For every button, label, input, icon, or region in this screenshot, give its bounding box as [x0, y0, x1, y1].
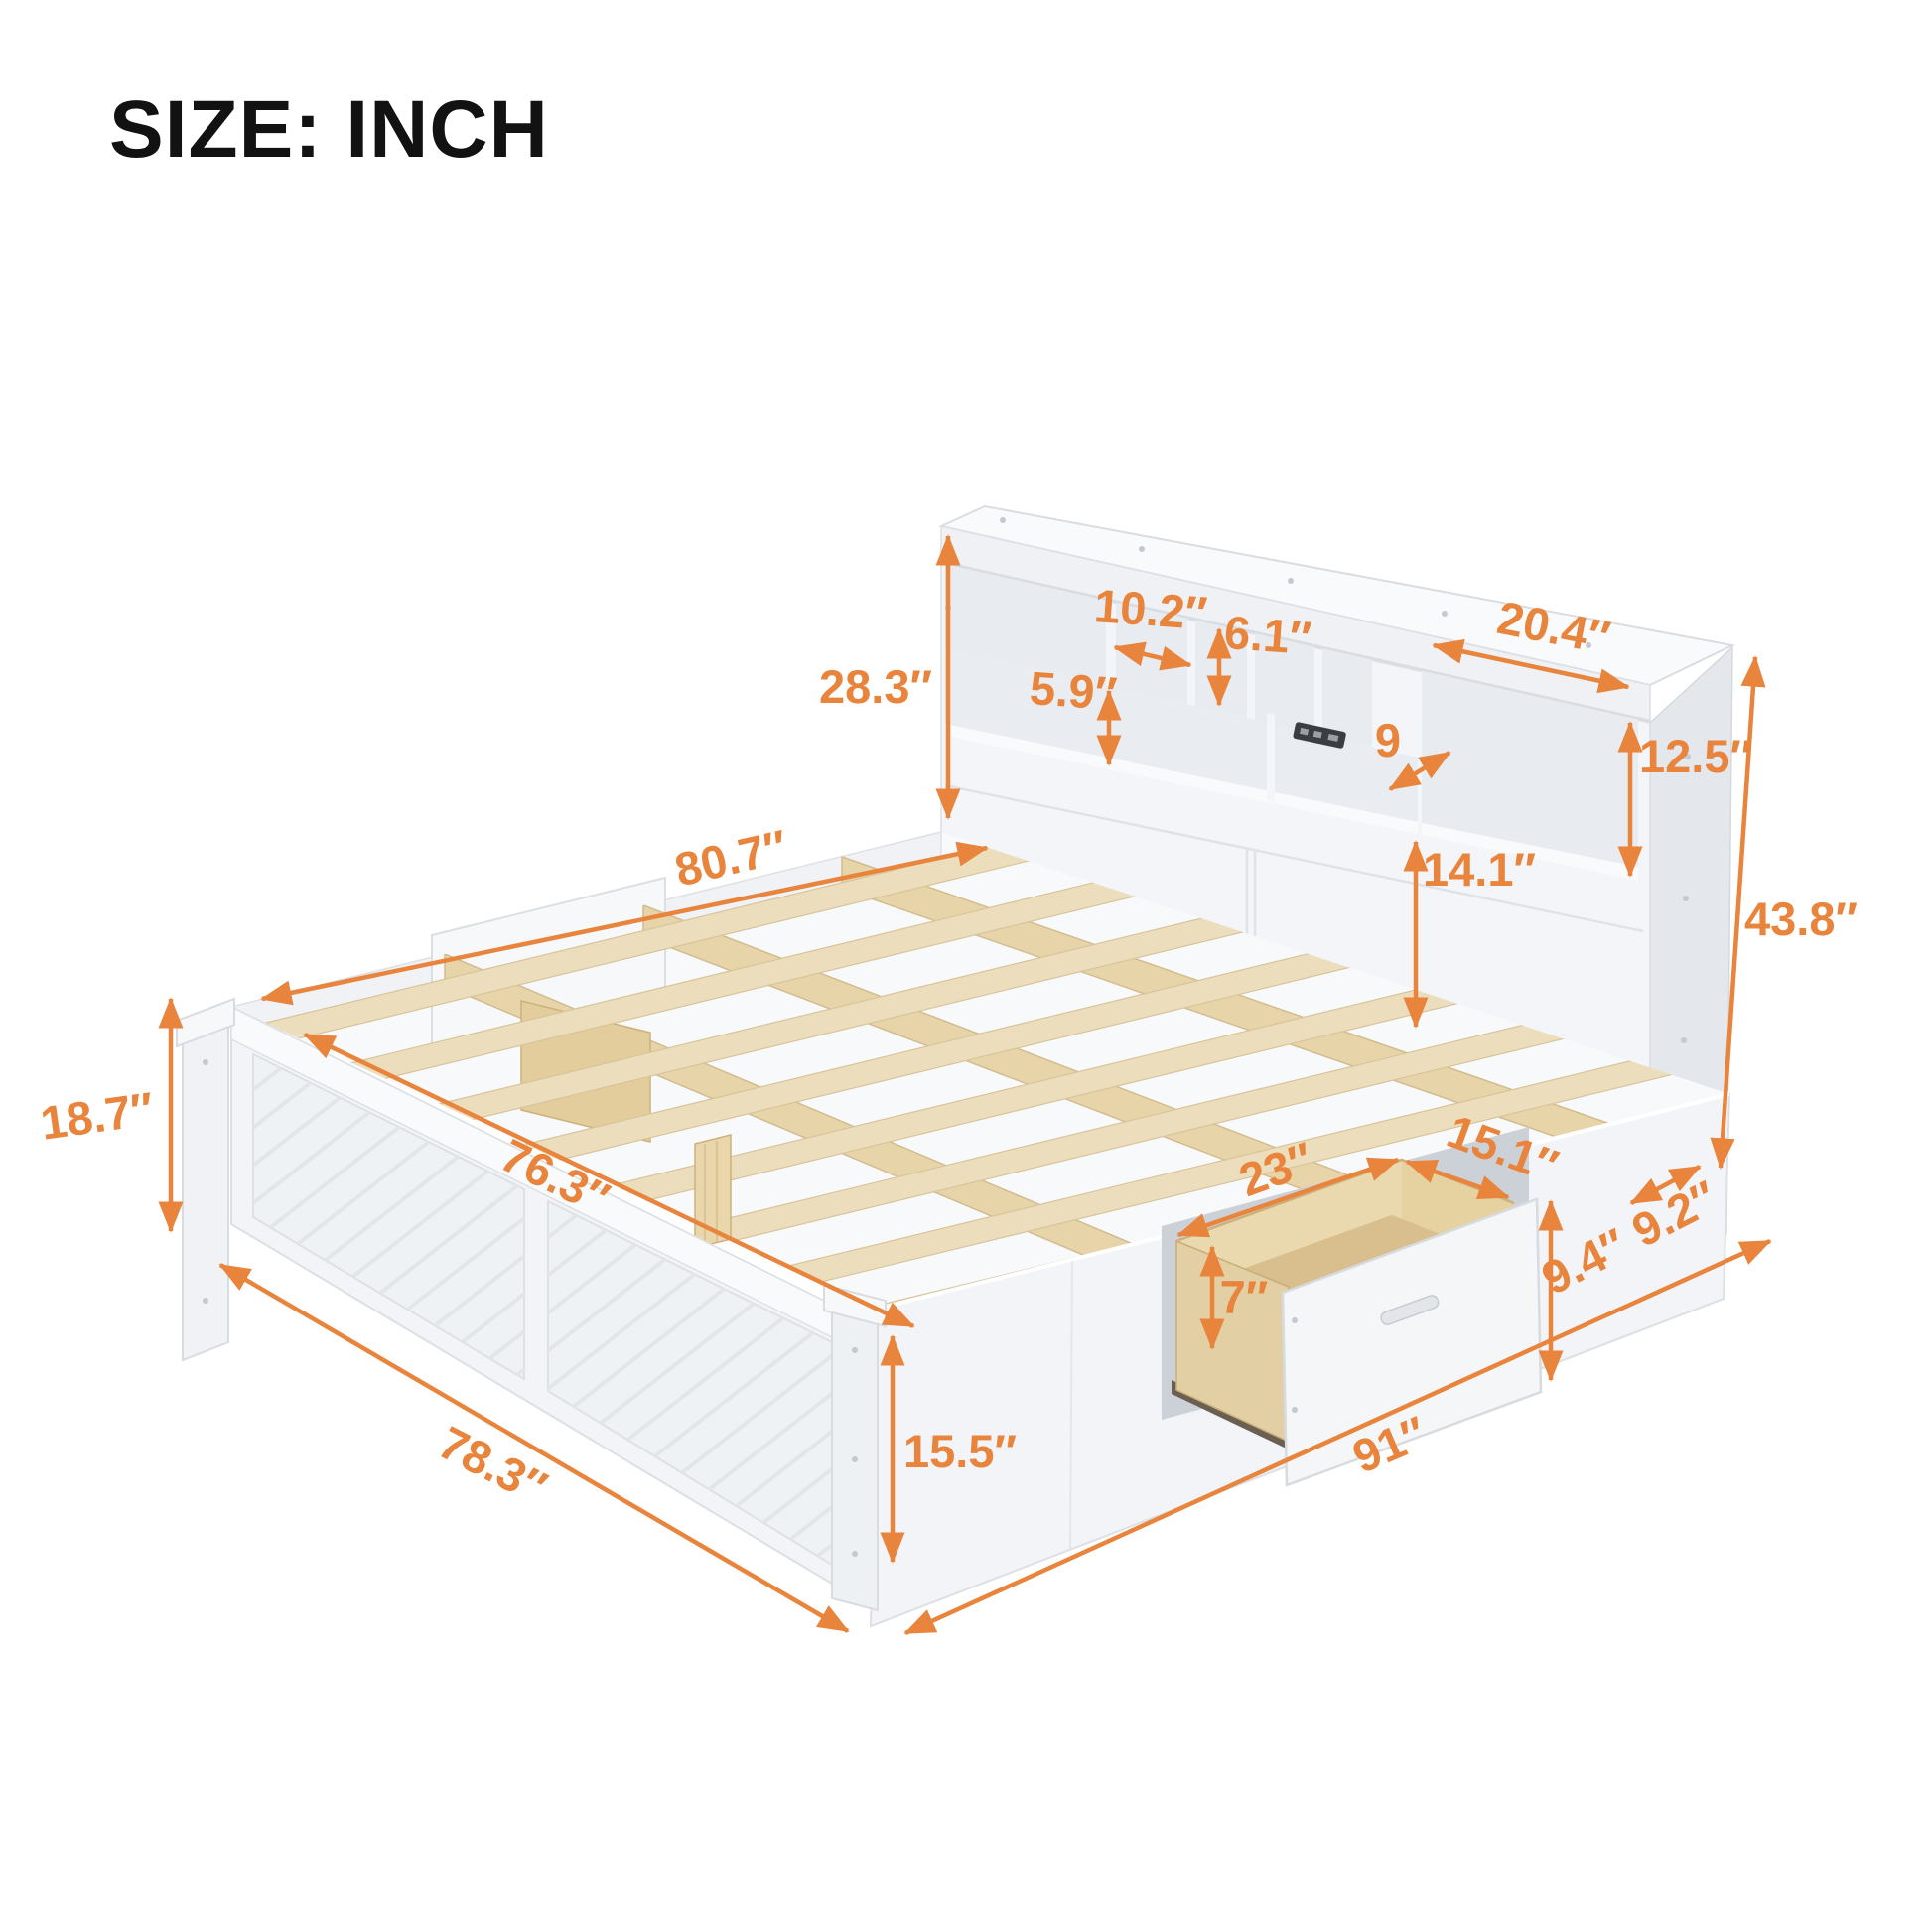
- dim-label-lower-panel-height: 14.1″: [1423, 843, 1536, 896]
- dim-label-footboard-height: 18.7″: [38, 1081, 157, 1149]
- page-title: SIZE: INCH: [109, 84, 549, 175]
- dim-label-cubby-small-width: 10.2″: [1092, 579, 1208, 639]
- dim-label-drawer-inner-height: 7″: [1220, 1271, 1269, 1323]
- dim-label-cubby-depth: 9: [1375, 714, 1401, 766]
- dim-label-right-cubby-height: 12.5″: [1639, 730, 1752, 782]
- size-diagram: 28.3″ 10.2″ 6.1″ 20.4″ 5.9″ 9 12.5″ 14.1…: [0, 0, 1932, 1932]
- dim-label-headboard-total-height: 43.8″: [1744, 893, 1858, 945]
- bed-dimension-drawing: 28.3″ 10.2″ 6.1″ 20.4″ 5.9″ 9 12.5″ 14.1…: [0, 0, 1932, 1932]
- dim-label-side-rail-height: 15.5″: [903, 1425, 1017, 1477]
- dim-label-footboard-width: 78.3″: [431, 1416, 556, 1514]
- dim-label-headboard-upper-height: 28.3″: [819, 660, 932, 713]
- footboard-right-post: [832, 1297, 878, 1610]
- dim-label-shelf-height: 5.9″: [1028, 661, 1118, 720]
- dim-label-cubby-center-height: 6.1″: [1222, 606, 1312, 664]
